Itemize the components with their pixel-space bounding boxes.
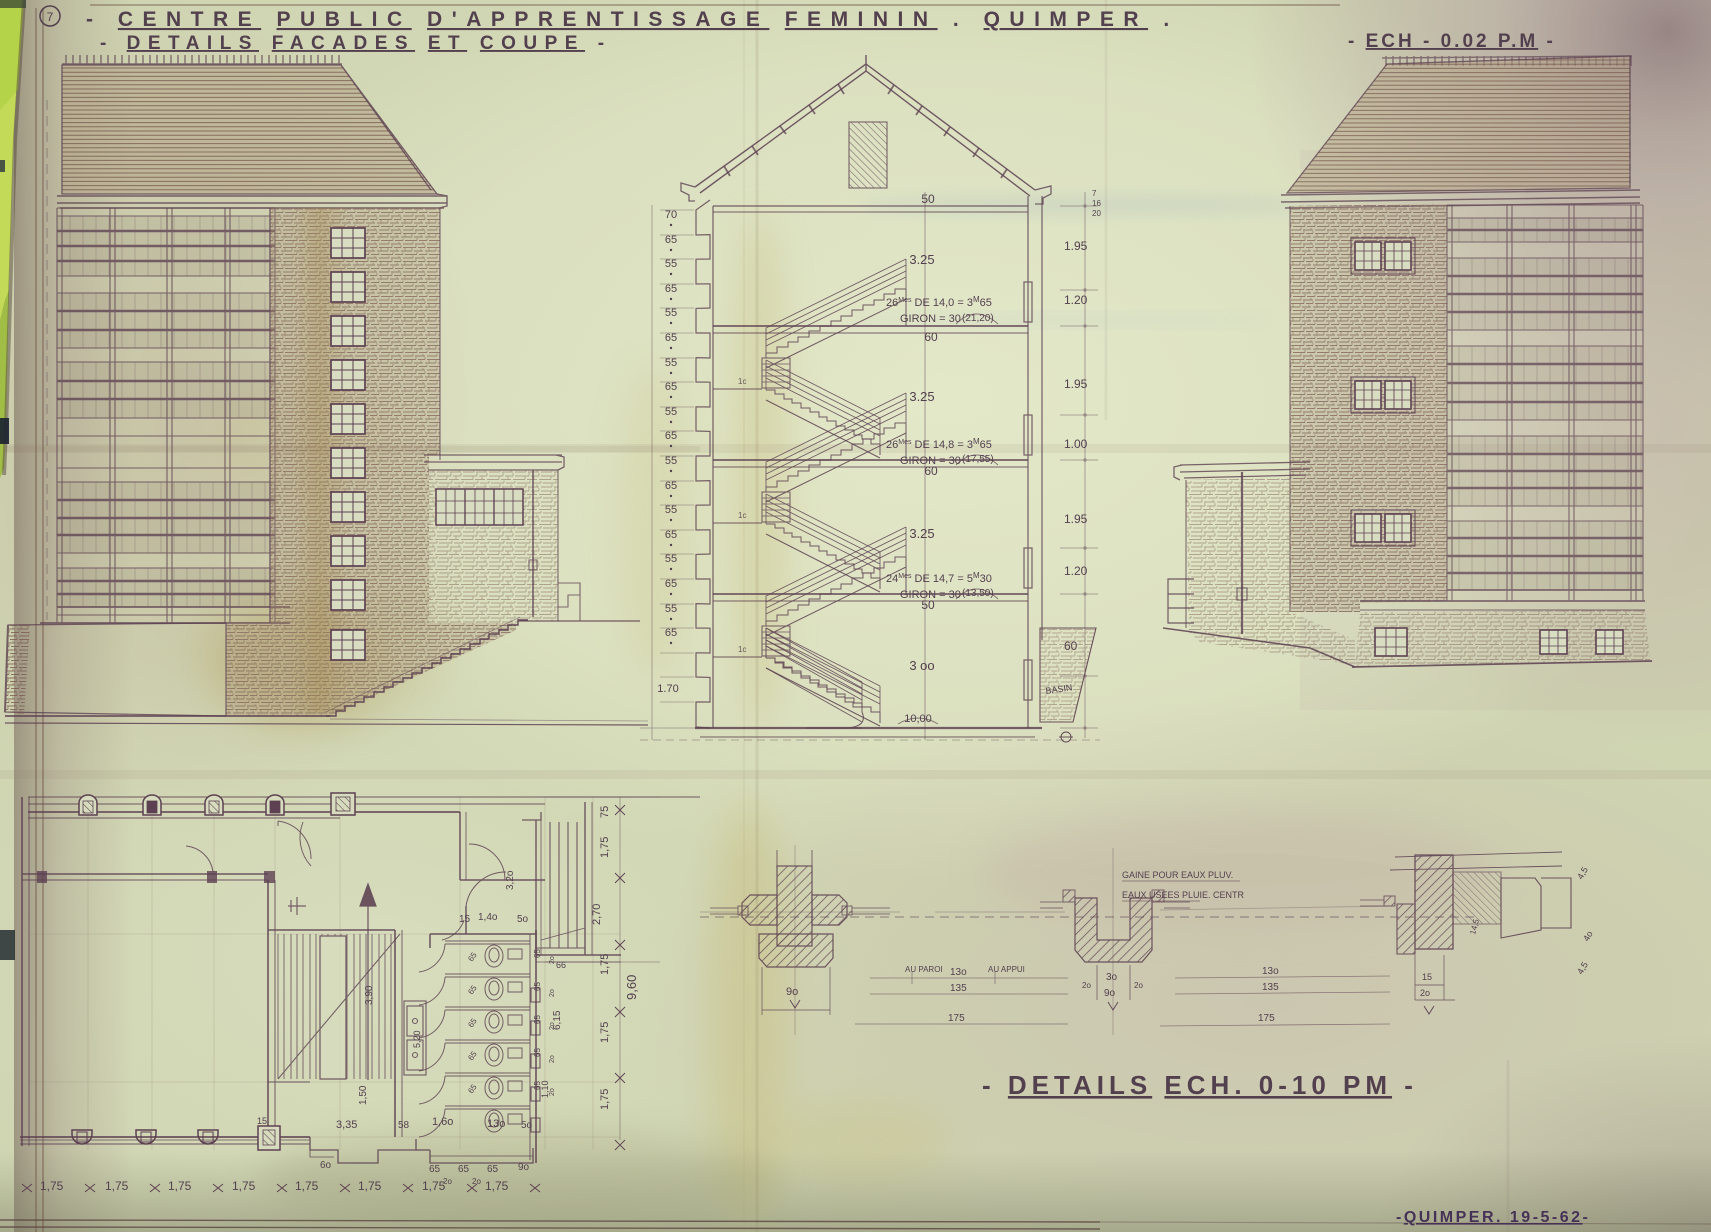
svg-text:1,75: 1,75 xyxy=(295,1179,319,1193)
svg-text:55: 55 xyxy=(665,258,677,270)
svg-text:65: 65 xyxy=(665,430,677,442)
svg-text:1c: 1c xyxy=(738,511,746,520)
svg-text:- CENTRE PUBLIC D'APPRENTISSAG: - CENTRE PUBLIC D'APPRENTISSAGE FEMININ … xyxy=(86,8,1179,31)
svg-text:1,75: 1,75 xyxy=(40,1179,64,1193)
svg-text:65: 65 xyxy=(665,529,677,541)
svg-text:15: 15 xyxy=(1422,972,1432,982)
svg-text:- ECH - 0.02 P.M -: - ECH - 0.02 P.M - xyxy=(1348,31,1556,52)
svg-text:50: 50 xyxy=(921,192,935,206)
svg-text:50: 50 xyxy=(921,598,935,612)
svg-text:55: 55 xyxy=(665,553,677,565)
svg-text:1,75: 1,75 xyxy=(168,1179,192,1193)
svg-text:3.25: 3.25 xyxy=(909,252,934,267)
svg-text:(13,50): (13,50) xyxy=(962,588,994,599)
svg-text:1,75: 1,75 xyxy=(599,1089,611,1110)
svg-text:1,50: 1,50 xyxy=(358,1085,369,1105)
svg-text:175: 175 xyxy=(1258,1013,1275,1024)
svg-text:15: 15 xyxy=(257,1116,267,1126)
svg-text:1,75: 1,75 xyxy=(599,954,611,975)
svg-text:65: 65 xyxy=(533,1081,542,1090)
svg-text:9o: 9o xyxy=(786,986,798,998)
svg-text:13o: 13o xyxy=(487,1118,505,1130)
svg-text:175: 175 xyxy=(948,1013,965,1024)
svg-text:135: 135 xyxy=(1262,982,1279,993)
svg-text:1,6o: 1,6o xyxy=(432,1116,453,1128)
svg-text:60: 60 xyxy=(924,464,938,478)
svg-text:2o: 2o xyxy=(549,1055,556,1063)
svg-text:65: 65 xyxy=(665,381,677,393)
svg-text:2,70: 2,70 xyxy=(591,904,603,925)
svg-text:5,20: 5,20 xyxy=(412,1030,422,1048)
svg-text:-QUIMPER. 19-5-62-: -QUIMPER. 19-5-62- xyxy=(1396,1209,1590,1226)
svg-text:5o: 5o xyxy=(517,914,529,925)
svg-text:2o: 2o xyxy=(1134,981,1143,990)
svg-text:65: 65 xyxy=(487,1164,499,1175)
svg-text:1c: 1c xyxy=(738,645,746,654)
svg-text:55: 55 xyxy=(665,455,677,467)
svg-text:2o: 2o xyxy=(549,1022,556,1030)
svg-text:1,4o: 1,4o xyxy=(478,912,498,923)
svg-text:15: 15 xyxy=(459,914,471,925)
svg-text:65: 65 xyxy=(458,1164,470,1175)
svg-text:9o: 9o xyxy=(1104,988,1116,999)
svg-text:20: 20 xyxy=(1092,209,1101,218)
svg-text:- DETAILS ECH. 0-10 PM -: - DETAILS ECH. 0-10 PM - xyxy=(982,1070,1418,1100)
svg-text:60: 60 xyxy=(924,330,938,344)
svg-text:6o: 6o xyxy=(320,1160,332,1171)
svg-text:AU APPUI: AU APPUI xyxy=(988,965,1025,974)
svg-text:1.20: 1.20 xyxy=(1064,293,1088,307)
svg-text:1.00: 1.00 xyxy=(1064,437,1088,451)
svg-text:55: 55 xyxy=(665,603,677,615)
svg-text:1.95: 1.95 xyxy=(1064,512,1088,526)
svg-text:65: 65 xyxy=(533,982,542,991)
svg-text:1.70: 1.70 xyxy=(657,683,678,695)
svg-text:(21,20): (21,20) xyxy=(962,313,994,324)
svg-text:16: 16 xyxy=(1092,199,1101,208)
svg-text:65: 65 xyxy=(429,1164,441,1175)
svg-text:2o: 2o xyxy=(1420,988,1430,998)
svg-text:2o: 2o xyxy=(549,1088,556,1096)
svg-text:66: 66 xyxy=(556,960,566,970)
svg-text:1,75: 1,75 xyxy=(232,1179,256,1193)
svg-text:55: 55 xyxy=(665,406,677,418)
svg-text:- DETAILS FACADES ET COUPE -: - DETAILS FACADES ET COUPE - xyxy=(100,33,612,54)
svg-text:AU PAROI: AU PAROI xyxy=(905,965,943,974)
svg-text:135: 135 xyxy=(950,983,967,994)
svg-text:1,75: 1,75 xyxy=(358,1179,382,1193)
svg-text:3,90: 3,90 xyxy=(364,985,375,1005)
svg-text:1,75: 1,75 xyxy=(485,1179,509,1193)
svg-text:EAUX USEES PLUIE. CENTR: EAUX USEES PLUIE. CENTR xyxy=(1122,890,1245,900)
svg-text:GAINE POUR EAUX PLUV.: GAINE POUR EAUX PLUV. xyxy=(1122,870,1233,880)
svg-text:13o: 13o xyxy=(1262,966,1279,977)
svg-text:3,2o: 3,2o xyxy=(505,870,516,890)
svg-text:65: 65 xyxy=(533,1048,542,1057)
svg-text:65: 65 xyxy=(533,949,542,958)
svg-text:65: 65 xyxy=(665,332,677,344)
svg-text:7: 7 xyxy=(47,10,54,24)
svg-text:70: 70 xyxy=(665,209,677,221)
svg-text:2o: 2o xyxy=(472,1177,481,1186)
svg-text:65: 65 xyxy=(665,480,677,492)
svg-text:5o: 5o xyxy=(521,1120,533,1131)
svg-text:2o: 2o xyxy=(443,1177,452,1186)
svg-text:1,75: 1,75 xyxy=(105,1179,129,1193)
svg-text:58: 58 xyxy=(398,1120,410,1131)
svg-text:(17,55): (17,55) xyxy=(962,454,994,465)
svg-text:75: 75 xyxy=(599,806,611,818)
svg-text:65: 65 xyxy=(665,283,677,295)
svg-text:1.20: 1.20 xyxy=(1064,564,1088,578)
svg-text:55: 55 xyxy=(665,357,677,369)
svg-text:3.25: 3.25 xyxy=(909,526,934,541)
svg-text:1,75: 1,75 xyxy=(599,1022,611,1043)
svg-text:1.95: 1.95 xyxy=(1064,239,1088,253)
svg-text:9o: 9o xyxy=(518,1162,530,1173)
svg-text:2o: 2o xyxy=(549,989,556,997)
svg-text:65: 65 xyxy=(665,578,677,590)
svg-text:7: 7 xyxy=(1092,189,1097,198)
svg-text:2o: 2o xyxy=(549,956,556,964)
svg-text:3.25: 3.25 xyxy=(909,389,934,404)
svg-text:55: 55 xyxy=(665,504,677,516)
svg-text:13o: 13o xyxy=(950,967,967,978)
svg-text:65: 65 xyxy=(665,627,677,639)
svg-text:9,60: 9,60 xyxy=(624,975,639,1000)
svg-text:3o: 3o xyxy=(1106,972,1118,983)
svg-text:GIRON = 30: GIRON = 30 xyxy=(900,313,961,325)
svg-text:65: 65 xyxy=(665,234,677,246)
svg-text:3,35: 3,35 xyxy=(336,1119,357,1131)
svg-text:55: 55 xyxy=(665,307,677,319)
svg-text:3 oo: 3 oo xyxy=(909,658,934,673)
svg-text:1,75: 1,75 xyxy=(599,837,611,858)
svg-text:1c: 1c xyxy=(738,377,746,386)
svg-text:65: 65 xyxy=(533,1015,542,1024)
svg-text:2o: 2o xyxy=(1082,981,1091,990)
svg-text:1.95: 1.95 xyxy=(1064,377,1088,391)
